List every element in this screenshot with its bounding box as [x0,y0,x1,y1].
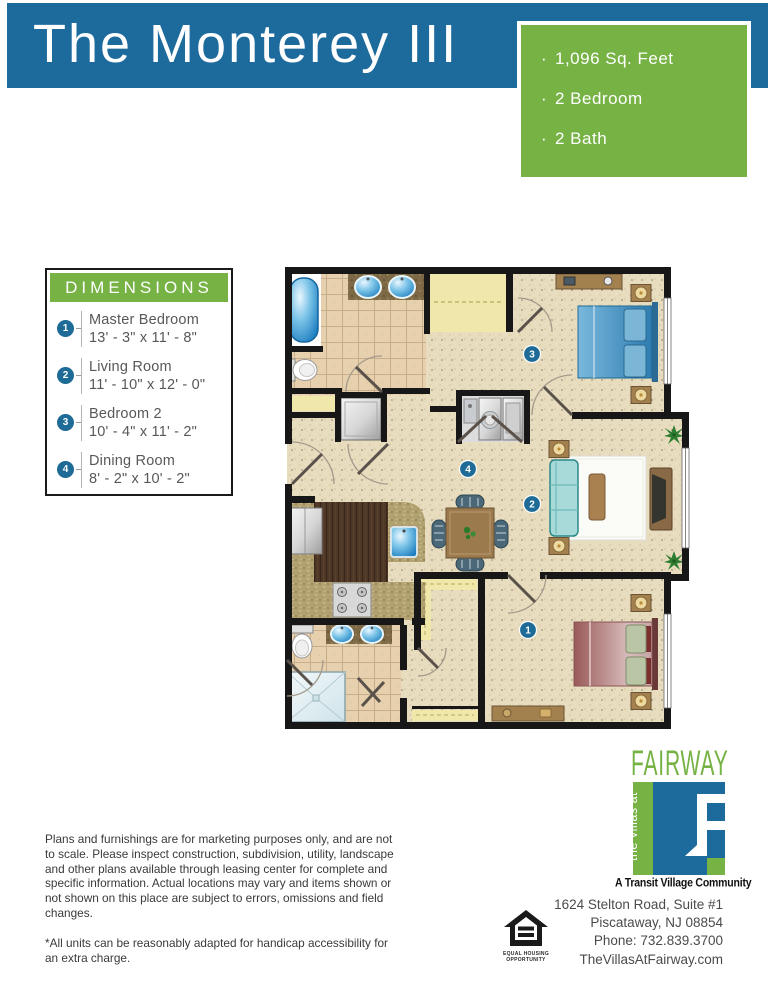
dimension-row: 2 Living Room 11' - 10" x 12' - 0" [47,352,231,399]
dimension-row: 3 Bedroom 2 10' - 4" x 11' - 2" [47,399,231,446]
end-table-icon [549,441,569,458]
dining-chair-icon [432,520,446,548]
spec-bedrooms: ·2 Bedroom [541,89,747,109]
address-line2: Piscataway, NJ 08854 [480,914,723,932]
dining-chair-icon [494,520,508,548]
bullet-icon: · [541,49,555,69]
sofa-icon [550,460,578,536]
sink-icon [331,625,353,643]
phone-line: Phone: 732.839.3700 [480,932,723,950]
logo-green-accent [707,858,725,875]
dimension-text: Master Bedroom 13' - 3" x 11' - 8" [89,311,199,347]
floor-plan: 1 2 3 4 [278,262,698,734]
room-size: 11' - 10" x 12' - 0" [89,377,205,393]
headboard [652,302,658,382]
divider [81,358,82,394]
pillow [624,345,646,377]
website-line: TheVillasAtFairway.com [480,951,723,969]
fridge-icon [288,508,322,554]
room-number-badge: 2 [57,367,74,384]
spec-label: 2 Bath [555,129,607,148]
spec-label: 1,096 Sq. Feet [555,49,674,68]
dimension-row: 1 Master Bedroom 13' - 3" x 11' - 8" [47,305,231,352]
shower-icon [287,672,345,722]
window-icon [664,614,671,708]
fairway-logo-mark: the villas at [633,782,727,878]
window-icon [682,448,689,548]
dimension-row: 4 Dining Room 8' - 2" x 10' - 2" [47,446,231,493]
disclaimer: Plans and furnishings are for marketing … [45,832,397,965]
toilet-icon [291,625,313,633]
coffee-table-icon [589,474,605,520]
laundry-sink-icon [464,399,477,423]
page-title: The Monterey III [33,13,458,75]
room-name: Master Bedroom [89,312,199,328]
svg-text:4: 4 [465,465,471,476]
dimensions-header: DIMENSIONS [50,273,228,302]
tv-icon [652,474,666,524]
headboard [652,618,658,690]
room-name: Dining Room [89,453,175,469]
water-heater-icon [341,398,381,440]
pillow [626,657,646,685]
marker-living-room: 2 [524,496,541,513]
disclaimer-note: *All units can be reasonably adapted for… [45,936,397,966]
svg-text:1: 1 [525,626,531,637]
entry-closet [430,274,506,332]
window-icon [664,298,671,384]
sink-icon [355,276,381,298]
area-rug [568,456,646,540]
divider [81,452,82,488]
nightstand-icon [631,387,651,404]
fairway-wordmark: FAIRWAY [631,744,729,784]
bathtub-icon [290,278,318,342]
bullet-icon: · [541,89,555,109]
kitchen-sink-icon [391,527,417,557]
room-size: 8' - 2" x 10' - 2" [89,471,190,487]
room-number-badge: 3 [57,414,74,431]
room-name: Bedroom 2 [89,406,162,422]
clock-icon [604,277,612,285]
sink-icon [389,276,415,298]
disclaimer-body: Plans and furnishings are for marketing … [45,832,397,921]
room-number-badge: 1 [57,320,74,337]
dimension-text: Living Room 11' - 10" x 12' - 0" [89,358,205,394]
nightstand-icon [631,595,651,612]
pillow [626,625,646,653]
svg-text:2: 2 [529,500,535,511]
spec-baths: ·2 Bath [541,129,747,149]
pillow [624,309,646,341]
sink-icon [361,625,383,643]
room-number-badge: 4 [57,461,74,478]
stove-icon [333,583,371,617]
dimension-text: Bedroom 2 10' - 4" x 11' - 2" [89,405,197,441]
kitchen-floor [314,502,388,582]
contact-block: 1624 Stelton Road, Suite #1 Piscataway, … [480,896,723,969]
dimensions-panel: DIMENSIONS 1 Master Bedroom 13' - 3" x 1… [45,268,233,496]
marker-dining-room: 4 [460,461,477,478]
divider [81,311,82,347]
dimension-text: Dining Room 8' - 2" x 10' - 2" [89,452,190,488]
spec-sqft: ·1,096 Sq. Feet [541,49,747,69]
marker-bedroom-2: 3 [524,346,541,363]
room-size: 13' - 3" x 11' - 8" [89,330,197,346]
room-name: Living Room [89,359,172,375]
logo-vertical-text: the villas at [633,792,640,861]
brand-tagline: A Transit Village Community [615,876,735,889]
end-table-icon [549,538,569,555]
room-size: 10' - 4" x 11' - 2" [89,424,197,440]
linen-closet [287,396,335,411]
nightstand-icon [631,693,651,710]
bullet-icon: · [541,129,555,149]
divider [81,405,82,441]
svg-text:3: 3 [529,350,535,361]
marker-master-bedroom: 1 [520,622,537,639]
nightstand-icon [631,285,651,302]
laptop-icon [564,277,575,285]
spec-label: 2 Bedroom [555,89,643,108]
address-line1: 1624 Stelton Road, Suite #1 [480,896,723,914]
specs-card: ·1,096 Sq. Feet ·2 Bedroom ·2 Bath [517,21,751,181]
